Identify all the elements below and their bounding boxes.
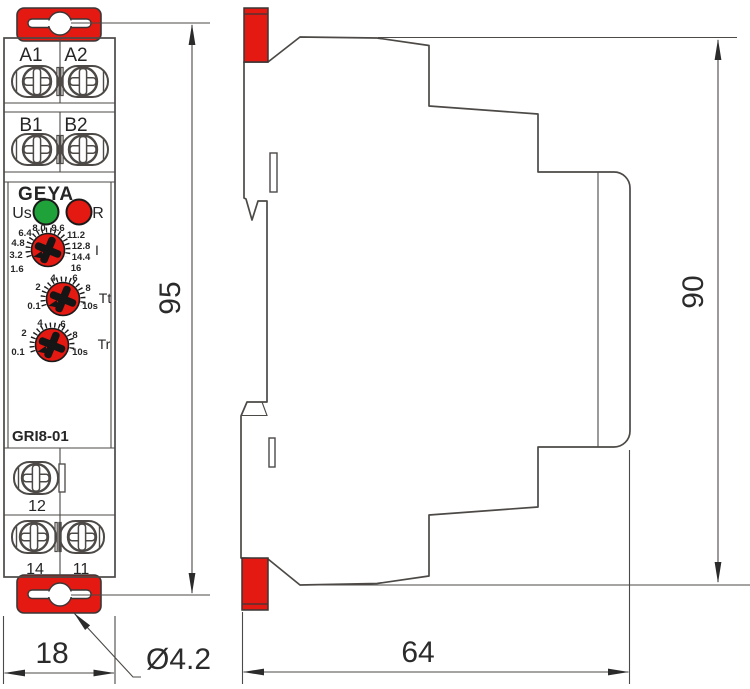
- din-clip-top-body: [244, 8, 268, 62]
- dial-scale-label: 4: [50, 273, 56, 284]
- dial-scale-label: 11.2: [67, 230, 85, 241]
- led-r-label: R: [92, 205, 104, 222]
- terminal-11: [60, 521, 104, 553]
- dial-scale-label: 10s: [82, 301, 98, 312]
- front-view: A1 A2 B1 B2: [4, 8, 115, 613]
- dial-scale-label: 6: [60, 319, 65, 330]
- top-hole-fill: [50, 13, 71, 34]
- dial-i-label: I: [95, 242, 99, 258]
- din-clip-bottom: [242, 558, 268, 610]
- terminal-label-b1: B1: [19, 115, 42, 136]
- terminal-14: [12, 521, 56, 553]
- dial-scale-label: 10s: [72, 347, 88, 358]
- dial-scale-label: 8: [85, 283, 90, 294]
- drawing-canvas: A1 A2 B1 B2: [0, 0, 750, 689]
- terminal-a1: [12, 66, 58, 97]
- side-inner-details: [241, 153, 598, 467]
- dial-scale-label: 0.1: [27, 301, 41, 312]
- terminal-label-b2: B2: [64, 115, 87, 136]
- dial-scale-label: 6.4: [18, 228, 32, 239]
- arrowhead: [4, 670, 25, 677]
- arrowhead: [715, 39, 722, 60]
- current-dial: 1.6 3.2 4.8 6.4 8.0 9.6 11.2 12.8 14.4 1…: [9, 223, 99, 275]
- dim-value-90: 90: [677, 275, 710, 308]
- arrowhead: [715, 562, 722, 583]
- technical-drawing: A1 A2 B1 B2: [0, 0, 750, 689]
- model-label: GRI8-01: [12, 428, 69, 445]
- dim-value-hole: Ø4.2: [146, 643, 211, 676]
- arrowhead: [189, 24, 196, 45]
- terminal-a2: [62, 66, 108, 97]
- terminal-label-a2: A2: [64, 45, 87, 66]
- dial-scale-label: 12.8: [72, 241, 91, 252]
- dim-value-95: 95: [154, 281, 187, 314]
- tr-dial: 0.1 2 4 6 8 10s Tr: [11, 318, 110, 363]
- dial-scale-label: 2: [21, 328, 26, 339]
- side-view: [241, 8, 630, 610]
- dimension-front-width: 18: [4, 616, 116, 684]
- terminal-b1: [12, 134, 58, 165]
- bottom-mount-tab: [17, 575, 101, 613]
- dial-scale-label: 8: [72, 330, 77, 341]
- supply-led: [34, 200, 59, 225]
- arrowhead: [94, 670, 115, 677]
- din-clip-bottom-body: [242, 558, 268, 610]
- relay-led: [67, 200, 92, 225]
- dial-scale-label: 6: [72, 273, 77, 284]
- dimension-hole-diameter: Ø4.2: [74, 613, 211, 677]
- arrowhead: [608, 669, 629, 676]
- dial-tt-label: Tt: [99, 290, 112, 306]
- arrowhead: [74, 613, 90, 630]
- dial-scale-label: 14.4: [72, 252, 91, 263]
- dial-scale-label: 2: [35, 282, 40, 293]
- terminal-label-a1: A1: [19, 45, 42, 66]
- dial-scale-label: 8.0: [32, 223, 45, 234]
- dial-scale-label: 1.6: [10, 264, 23, 275]
- terminal-12: [14, 462, 65, 494]
- dim-value-64: 64: [401, 636, 434, 669]
- arrowhead: [243, 669, 264, 676]
- dial-scale-label: 4.8: [11, 238, 24, 249]
- dimension-side-depth: 64: [243, 450, 630, 684]
- led-us-label: Us: [12, 205, 32, 222]
- dimension-side-height: 90: [300, 38, 750, 586]
- terminal-label-12: 12: [28, 498, 46, 515]
- bottom-hole-fill: [50, 584, 71, 605]
- terminal-label-14: 14: [26, 561, 44, 578]
- dial-scale-label: 0.1: [11, 347, 25, 358]
- dim-value-18: 18: [35, 637, 68, 670]
- dial-tr-label: Tr: [98, 336, 111, 352]
- tt-dial: 0.1 2 4 6 8 10s Tt: [27, 273, 111, 317]
- side-body-outline: [241, 37, 630, 585]
- dial-scale-label: 3.2: [9, 250, 22, 261]
- terminal-b2: [62, 134, 108, 165]
- top-mount-tab: [17, 8, 101, 41]
- din-clip-top: [244, 8, 268, 62]
- terminal-label-11: 11: [73, 561, 90, 578]
- dial-scale-label: 9.6: [51, 223, 64, 234]
- arrowhead: [189, 573, 196, 594]
- dial-scale-label: 4: [37, 318, 43, 329]
